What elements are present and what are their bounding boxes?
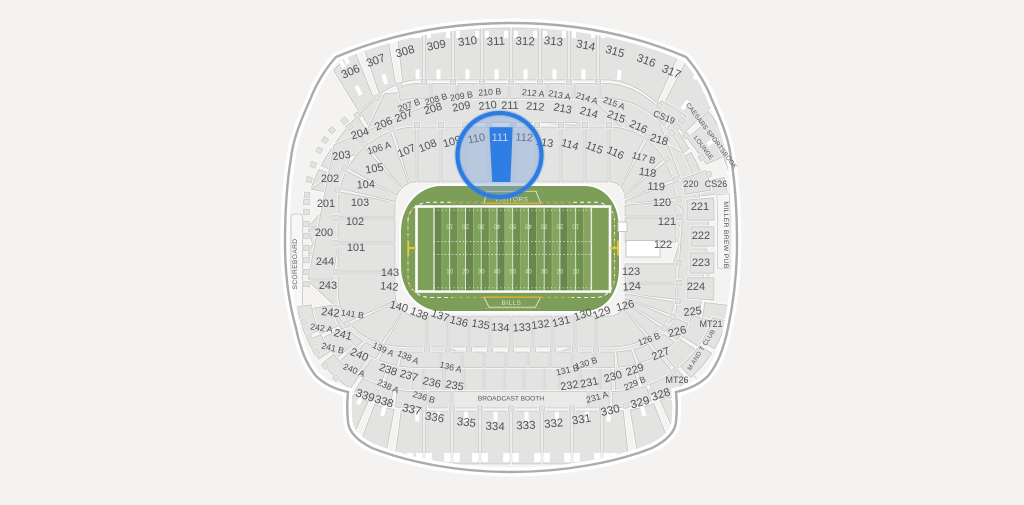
svg-text:20: 20 — [462, 269, 469, 276]
svg-text:50: 50 — [509, 269, 516, 276]
svg-text:SCOREBOARD: SCOREBOARD — [292, 239, 299, 290]
svg-text:103: 103 — [351, 197, 369, 209]
svg-text:30: 30 — [477, 223, 484, 230]
svg-text:212 A: 212 A — [522, 87, 545, 99]
svg-text:124: 124 — [622, 280, 641, 293]
svg-text:MT26: MT26 — [665, 375, 688, 385]
svg-text:220: 220 — [683, 179, 698, 189]
svg-text:133: 133 — [512, 322, 531, 335]
svg-text:BILLS: BILLS — [502, 300, 522, 307]
svg-text:10: 10 — [446, 223, 453, 230]
svg-text:312: 312 — [515, 36, 535, 49]
svg-text:212: 212 — [526, 100, 545, 114]
svg-text:134: 134 — [491, 321, 510, 334]
svg-text:101: 101 — [347, 242, 365, 254]
svg-text:30: 30 — [478, 269, 485, 276]
svg-text:10: 10 — [446, 269, 453, 276]
svg-text:332: 332 — [544, 417, 564, 431]
svg-text:20: 20 — [556, 269, 563, 276]
svg-text:225: 225 — [683, 305, 703, 319]
svg-text:40: 40 — [493, 223, 500, 230]
svg-text:MILLER BREW PUB: MILLER BREW PUB — [722, 201, 729, 268]
svg-text:333: 333 — [516, 420, 536, 433]
svg-text:200: 200 — [315, 227, 333, 239]
svg-text:122: 122 — [654, 239, 672, 251]
svg-text:20: 20 — [462, 223, 469, 230]
svg-text:104: 104 — [356, 179, 375, 192]
svg-text:119: 119 — [647, 181, 665, 194]
svg-text:201: 201 — [317, 198, 335, 210]
svg-text:MT21: MT21 — [699, 319, 722, 329]
svg-text:242: 242 — [321, 306, 341, 320]
svg-text:203: 203 — [332, 149, 352, 163]
svg-text:123: 123 — [622, 266, 640, 278]
svg-text:10: 10 — [572, 223, 579, 230]
svg-text:40: 40 — [524, 223, 531, 230]
svg-text:222: 222 — [692, 230, 710, 242]
svg-text:210 B: 210 B — [478, 86, 502, 98]
svg-text:132: 132 — [531, 318, 551, 332]
svg-text:40: 40 — [494, 269, 501, 276]
svg-text:10: 10 — [572, 269, 579, 276]
svg-text:30: 30 — [541, 269, 548, 276]
svg-text:223: 223 — [692, 257, 710, 269]
svg-text:244: 244 — [316, 256, 334, 268]
svg-text:224: 224 — [687, 281, 705, 293]
svg-text:310: 310 — [457, 35, 478, 49]
svg-text:20: 20 — [556, 223, 563, 230]
svg-text:311: 311 — [486, 36, 505, 49]
svg-text:BROADCAST BOOTH: BROADCAST BOOTH — [478, 396, 544, 403]
svg-text:334: 334 — [485, 421, 505, 434]
svg-text:CS26: CS26 — [705, 179, 728, 189]
svg-text:143: 143 — [381, 267, 399, 279]
svg-text:50: 50 — [509, 223, 516, 230]
svg-text:202: 202 — [321, 173, 339, 185]
svg-text:102: 102 — [346, 216, 364, 228]
svg-text:313: 313 — [543, 35, 563, 49]
svg-text:142: 142 — [380, 280, 399, 294]
svg-text:221: 221 — [691, 201, 709, 213]
svg-text:121: 121 — [658, 216, 676, 228]
svg-text:30: 30 — [540, 223, 547, 230]
svg-text:243: 243 — [319, 280, 337, 292]
svg-text:335: 335 — [456, 416, 476, 430]
svg-text:111: 111 — [492, 132, 509, 144]
svg-text:120: 120 — [653, 197, 671, 209]
svg-text:40: 40 — [525, 269, 532, 276]
